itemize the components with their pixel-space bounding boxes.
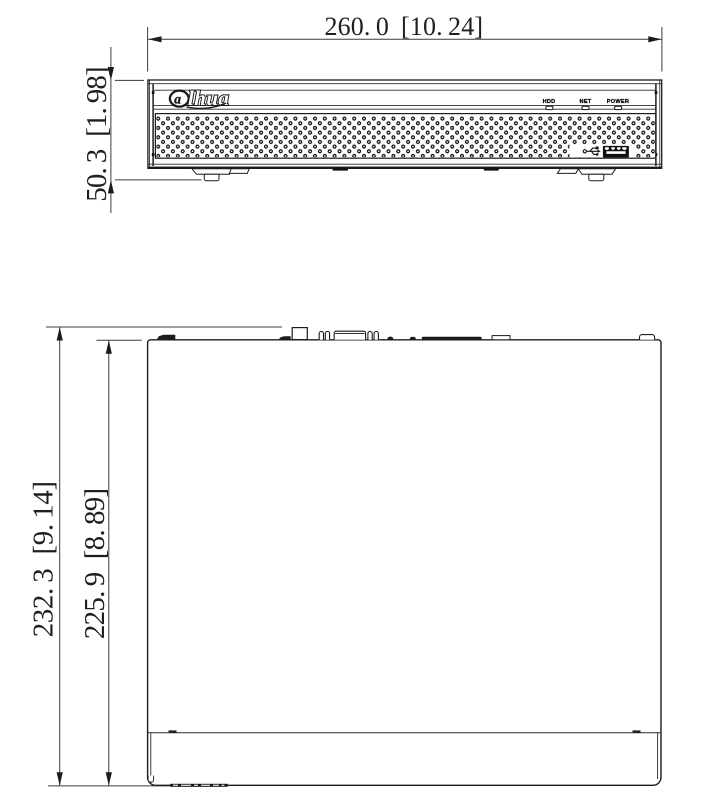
svg-text:232. 3 [9. 14]: 232. 3 [9. 14] (28, 481, 60, 637)
svg-text:NET: NET (580, 99, 592, 105)
svg-text:a: a (174, 92, 181, 107)
svg-text:260. 0 [10. 24]: 260. 0 [10. 24] (325, 12, 484, 41)
svg-text:50. 3 [1. 98]: 50. 3 [1. 98] (81, 67, 113, 202)
svg-text:lhua: lhua (188, 86, 229, 110)
svg-text:POWER: POWER (607, 99, 629, 105)
svg-text:HDD: HDD (543, 99, 556, 105)
svg-text:225. 9 [8. 89]: 225. 9 [8. 89] (79, 488, 111, 639)
